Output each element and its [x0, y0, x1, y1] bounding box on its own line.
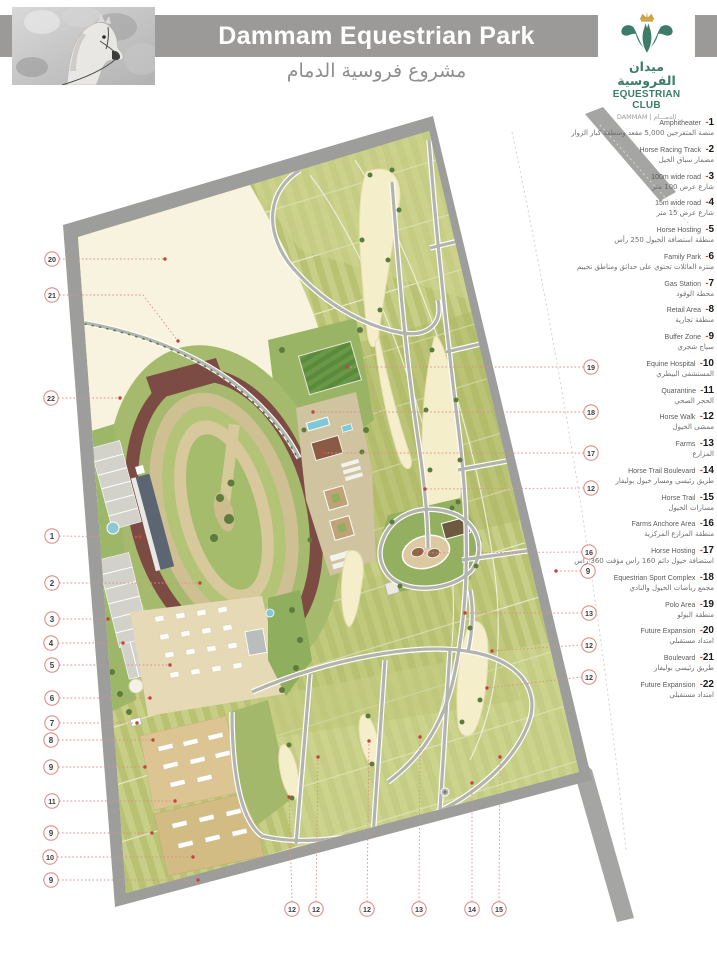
legend-item-name-en: 15m wide road: [655, 200, 701, 207]
legend-item-name-en: Equestrian Sport Complex: [614, 575, 696, 582]
callout-number: 20: [48, 255, 56, 264]
callout-target-dot: [198, 581, 201, 584]
legend-item: 15m wide road -4 شارع عرض 15 متر: [562, 196, 714, 218]
legend-item: Horse Hosting -5 منطقة استضافة الخيول 25…: [562, 223, 714, 245]
legend-item-name-en: Future Expansion: [641, 628, 696, 635]
callout-number: 14: [468, 905, 476, 914]
legend-item-name-ar: مسارات الخيول: [562, 504, 714, 513]
legend-item: Horse Walk -12 ممشى الخيول: [562, 410, 714, 432]
legend-item-name-ar: استضافة خيول دائم 160 راس مؤقت 360 راس: [562, 557, 714, 566]
legend-item: Horse Racing Track -2 مضمار سباق الخيل: [562, 143, 714, 165]
legend-item: Future Expansion -22 امتداد مستقبلي: [562, 678, 714, 700]
legend-item-number: 10: [703, 358, 714, 369]
legend-item: Amphitheater -1 منصة المتفرجين 5,000 مقع…: [562, 116, 714, 138]
legend-item: Horse Trail -15 مسارات الخيول: [562, 491, 714, 513]
legend-item: Family Park -6 منتزه العائلات تحتوي على …: [562, 250, 714, 272]
legend-item-name-en: Gas Station: [664, 281, 701, 288]
legend-item: Equine Hospital -10 المستشفى البيطري: [562, 357, 714, 379]
callout-number: 12: [363, 905, 371, 914]
legend-item-name-ar: شارع عرض 15 متر: [562, 209, 714, 218]
callout-number: 12: [312, 905, 320, 914]
callout-number: 2: [50, 579, 55, 588]
logo-name-arabic: ميدان الفروسية: [598, 60, 695, 89]
legend-item: Gas Station -7 محطة الوقود: [562, 277, 714, 299]
callout-target-dot: [168, 663, 171, 666]
callout-number: 22: [47, 394, 55, 403]
legend-item-name-en: Retail Area: [667, 307, 701, 314]
legend-item-name-ar: سياج شجري: [562, 343, 714, 352]
equestrian-club-logo: ميدان الفروسية EQUESTRIAN CLUB DAMMAM | …: [598, 8, 695, 121]
callout-target-dot: [321, 451, 324, 454]
pool: [266, 609, 274, 617]
callout-target-dot: [367, 739, 370, 742]
legend-item-number: 13: [703, 438, 714, 449]
legend-item-name-en: Horse Walk: [660, 414, 696, 421]
legend-item-name-ar: طريق رئيسي بوليفار: [562, 664, 714, 673]
legend-item-number: 12: [703, 411, 714, 422]
legend-item-number: 16: [703, 518, 714, 529]
callout-target-dot: [316, 755, 319, 758]
legend-item-name-ar: محطة الوقود: [562, 290, 714, 299]
legend-item-number: 17: [703, 545, 714, 556]
callout-target-dot: [196, 878, 199, 881]
legend-item-name-ar: ممشى الخيول: [562, 423, 714, 432]
legend-item-name-en: Horse Hosting: [657, 227, 701, 234]
legend-item-name-en: Future Expansion: [641, 682, 696, 689]
legend-item: Retail Area -8 منطقة تجارية: [562, 303, 714, 325]
legend-item-name-ar: منصة المتفرجين 5,000 مقعد ومنطقة كبار ال…: [562, 129, 714, 138]
callout-number: 10: [46, 853, 54, 862]
callout-number: 9: [49, 829, 54, 838]
legend-item-number: 1: [708, 117, 714, 128]
legend-item-name-ar: المستشفى البيطري: [562, 370, 714, 379]
callout-target-dot: [118, 396, 121, 399]
callout-number: 9: [49, 763, 54, 772]
legend-item: 100m wide road -3 شارع عرض 100 متر: [562, 170, 714, 192]
legend-item: Horse Hosting -17 استضافة خيول دائم 160 …: [562, 544, 714, 566]
callout-target-dot: [191, 855, 194, 858]
callout-target-dot: [143, 765, 146, 768]
legend-item: Future Expansion -20 امتداد مستقبلي: [562, 624, 714, 646]
callout-number: 6: [50, 694, 55, 703]
callout-target-dot: [470, 781, 473, 784]
legend-item-number: 19: [703, 599, 714, 610]
callout-number: 4: [49, 639, 54, 648]
club-emblem-icon: [611, 8, 683, 60]
legend-item-name-ar: مجمع رياضات الخيول والنادي: [562, 584, 714, 593]
legend-item-name-en: Buffer Zone: [665, 334, 701, 341]
legend-item-name-ar: مضمار سباق الخيل: [562, 156, 714, 165]
legend-item-name-ar: شارع عرض 100 متر: [562, 183, 714, 192]
callout-number: 3: [50, 615, 55, 624]
legend-item-number: 9: [708, 331, 714, 342]
legend-item-number: 8: [708, 304, 714, 315]
page-title: Dammam Equestrian Park: [218, 22, 534, 51]
legend-item: Polo Area -19 منطقة البولو: [562, 598, 714, 620]
legend-item-number: 4: [708, 197, 714, 208]
callout-target-dot: [135, 721, 138, 724]
legend-item-number: 20: [703, 625, 714, 636]
legend-item: Equestrian Sport Complex -18 مجمع رياضات…: [562, 571, 714, 593]
legend-item-name-ar: امتداد مستقبلي: [562, 691, 714, 700]
callout-target-dot: [106, 617, 109, 620]
callout-target-dot: [163, 257, 166, 260]
legend-item: Boulevard -21 طريق رئيسي بوليفار: [562, 651, 714, 673]
legend-item-name-ar: منطقة تجارية: [562, 316, 714, 325]
callout-number: 21: [48, 291, 56, 300]
callout-target-dot: [150, 831, 153, 834]
callout-number: 7: [50, 719, 55, 728]
callout-target-dot: [418, 551, 421, 554]
fountain-pond: [107, 522, 119, 534]
legend-item-name-ar: منتزه العائلات تحتوي على حدائق ومناطق تخ…: [562, 263, 714, 272]
callout-target-dot: [148, 696, 151, 699]
header-bar-right: [695, 15, 717, 57]
legend-item-name-ar: المزارع: [562, 450, 714, 459]
callout-target-dot: [176, 339, 179, 342]
callout-target-dot: [121, 641, 124, 644]
legend-item-number: 2: [708, 144, 714, 155]
legend-item-name-ar: منطقة البولو: [562, 611, 714, 620]
callout-number: 11: [48, 797, 56, 806]
callout-target-dot: [498, 755, 501, 758]
legend-item-number: 7: [708, 278, 714, 289]
legend: Amphitheater -1 منصة المتفرجين 5,000 مقع…: [562, 116, 714, 705]
legend-item: Buffer Zone -9 سياج شجري: [562, 330, 714, 352]
horse-photo: [12, 7, 155, 85]
callout-target-dot: [554, 569, 557, 572]
callout-number: 8: [49, 736, 54, 745]
legend-item-name-en: Boulevard: [664, 655, 696, 662]
page: 2021221234567891191091918171216913121212…: [0, 0, 717, 960]
callout-target-dot: [287, 795, 290, 798]
legend-item-name-en: Horse Hosting: [651, 548, 695, 555]
legend-item-number: 11: [703, 385, 714, 396]
legend-item-name-ar: منطقة المزارع المركزية: [562, 530, 714, 539]
legend-item-name-en: Farms Anchore Area: [632, 521, 696, 528]
legend-item-name-en: 100m wide road: [651, 174, 701, 181]
callout-number: 9: [49, 876, 54, 885]
logo-name-english: EQUESTRIAN CLUB: [598, 89, 695, 112]
legend-item-name-en: Quarantine: [661, 388, 696, 395]
legend-item: Farms -13 المزارع: [562, 437, 714, 459]
legend-item: Horse Trail Boulevard -14 طريق رئيسي ومس…: [562, 464, 714, 486]
callout-target-dot: [151, 738, 154, 741]
crown-icon: [639, 12, 654, 20]
legend-item-number: 6: [708, 251, 714, 262]
callout-target-dot: [345, 365, 348, 368]
callout-target-dot: [173, 799, 176, 802]
three-horses-icon: [621, 24, 672, 53]
legend-item-name-ar: طريق رئيسي ومسار خيول بوليفار: [562, 477, 714, 486]
legend-item-name-en: Farms: [676, 441, 696, 448]
legend-item-name-ar: منطقة استضافة الخيول 250 رأس: [562, 236, 714, 245]
legend-item-name-en: Horse Racing Track: [640, 147, 701, 154]
legend-item: Farms Anchore Area -16 منطقة المزارع الم…: [562, 517, 714, 539]
page-subtitle-arabic: مشروع فروسية الدمام: [155, 60, 598, 82]
callout-number: 5: [50, 661, 55, 670]
legend-item-number: 3: [708, 171, 714, 182]
callout-target-dot: [490, 649, 493, 652]
legend-item-name-en: Equine Hospital: [646, 361, 695, 368]
legend-item-name-en: Polo Area: [665, 602, 695, 609]
legend-item-name-en: Amphitheater: [659, 120, 701, 127]
callout-number: 15: [495, 905, 503, 914]
legend-item-name-ar: الحجر الصحي: [562, 397, 714, 406]
callout-number: 13: [415, 905, 423, 914]
callout-target-dot: [485, 686, 488, 689]
callout-target-dot: [463, 611, 466, 614]
callout-target-dot: [423, 487, 426, 490]
callout-target-dot: [418, 735, 421, 738]
legend-item-number: 15: [703, 492, 714, 503]
legend-item-number: 18: [703, 572, 714, 583]
callout-number: 1: [50, 532, 55, 541]
legend-item-number: 5: [708, 224, 714, 235]
legend-item-name-en: Horse Trail: [662, 495, 696, 502]
legend-item-number: 22: [703, 679, 714, 690]
legend-item: Quarantine -11 الحجر الصحي: [562, 384, 714, 406]
legend-item-name-en: Family Park: [664, 254, 701, 261]
callout-number: 12: [288, 905, 296, 914]
legend-item-number: 21: [703, 652, 714, 663]
legend-item-number: 14: [703, 465, 714, 476]
legend-item-name-ar: امتداد مستقبلي: [562, 637, 714, 646]
legend-item-name-en: Horse Trail Boulevard: [628, 468, 695, 475]
callout-target-dot: [311, 410, 314, 413]
callout-target-dot: [138, 535, 141, 538]
